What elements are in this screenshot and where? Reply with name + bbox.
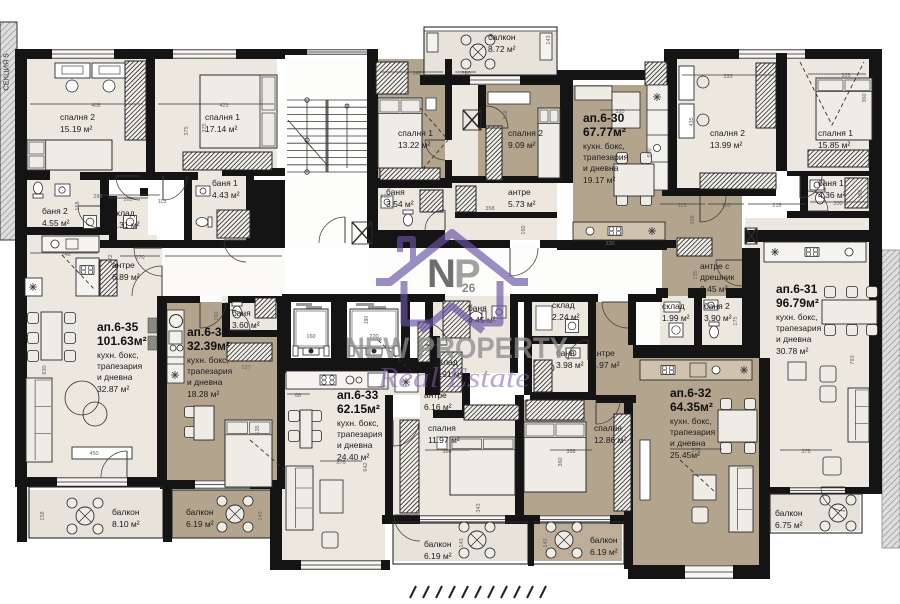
- svg-text:СЕКЦИЯ 5: СЕКЦИЯ 5: [2, 53, 11, 90]
- svg-text:баня: баня: [232, 308, 251, 318]
- svg-text:5.73 м²: 5.73 м²: [508, 199, 536, 209]
- svg-text:375: 375: [184, 126, 190, 135]
- svg-text:6.75 м²: 6.75 м²: [775, 520, 803, 530]
- svg-text:1.31 м²: 1.31 м²: [112, 220, 140, 230]
- svg-text:кухн. бокс,: кухн. бокс,: [97, 350, 139, 360]
- svg-text:8.72 м²: 8.72 м²: [488, 44, 516, 54]
- svg-text:143: 143: [543, 538, 549, 547]
- svg-text:и дневна: и дневна: [337, 440, 373, 450]
- svg-text:и дневна: и дневна: [187, 377, 223, 387]
- svg-text:165: 165: [380, 194, 389, 200]
- svg-text:137: 137: [241, 365, 250, 371]
- svg-text:630: 630: [42, 365, 48, 374]
- svg-text:793: 793: [850, 355, 856, 364]
- svg-text:143: 143: [258, 511, 264, 520]
- svg-text:трапезария: трапезария: [670, 427, 716, 437]
- svg-text:трапезария: трапезария: [776, 323, 822, 333]
- svg-text:и дневна: и дневна: [670, 438, 706, 448]
- svg-text:26: 26: [462, 281, 476, 295]
- svg-text:склад: склад: [662, 301, 685, 311]
- svg-text:32.87 м²: 32.87 м²: [97, 384, 129, 394]
- svg-text:6.16 м²: 6.16 м²: [424, 402, 452, 412]
- svg-text:кухн. бокс,: кухн. бокс,: [670, 416, 712, 426]
- svg-text:101.63м²: 101.63м²: [97, 334, 147, 348]
- svg-text:19.17 м²: 19.17 м²: [583, 175, 615, 185]
- svg-text:спалня: спалня: [428, 423, 456, 433]
- svg-text:ап.6-34: ап.6-34: [187, 325, 229, 339]
- svg-text:трапезария: трапезария: [583, 152, 629, 162]
- svg-text:160: 160: [306, 334, 315, 340]
- svg-text:143: 143: [459, 538, 465, 547]
- svg-text:158: 158: [40, 511, 46, 520]
- svg-text:спалня: спалня: [594, 423, 622, 433]
- svg-text:15.19 м²: 15.19 м²: [60, 124, 92, 134]
- svg-text:баня: баня: [468, 303, 487, 313]
- svg-text:5.97 м²: 5.97 м²: [592, 360, 620, 370]
- svg-text:балкон: балкон: [424, 539, 452, 549]
- svg-text:2.24 м²: 2.24 м²: [552, 312, 580, 322]
- svg-text:спалня 2: спалня 2: [710, 128, 745, 138]
- svg-text:3.54 м²: 3.54 м²: [386, 199, 414, 209]
- svg-text:11.97 м²: 11.97 м²: [428, 435, 460, 445]
- svg-text:баня 2: баня 2: [704, 301, 730, 311]
- svg-text:кухн. бокс,: кухн. бокс,: [337, 418, 379, 428]
- svg-text:330: 330: [605, 241, 614, 247]
- svg-text:343: 343: [476, 503, 482, 512]
- svg-text:спалня 1: спалня 1: [205, 112, 240, 122]
- svg-text:склад: склад: [112, 208, 135, 218]
- svg-text:спалня 1: спалня 1: [818, 128, 853, 138]
- svg-text:358: 358: [485, 206, 494, 212]
- svg-text:8.45 м²: 8.45 м²: [700, 284, 728, 294]
- svg-text:62.15м²: 62.15м²: [337, 402, 380, 416]
- svg-text:3.90 м²: 3.90 м²: [704, 313, 732, 323]
- svg-text:и дневна: и дневна: [97, 372, 133, 382]
- svg-text:4.43 м²: 4.43 м²: [212, 190, 240, 200]
- svg-text:450: 450: [89, 451, 98, 457]
- svg-text:113: 113: [158, 199, 167, 205]
- svg-text:13.99 м²: 13.99 м²: [710, 140, 742, 150]
- svg-text:96.79м²: 96.79м²: [776, 296, 819, 310]
- svg-text:360: 360: [558, 457, 564, 466]
- svg-text:6.19 м²: 6.19 м²: [590, 547, 618, 557]
- svg-text:15.85 м²: 15.85 м²: [818, 140, 850, 150]
- svg-text:NEW PROPERTY: NEW PROPERTY: [345, 332, 568, 365]
- svg-text:190: 190: [364, 316, 370, 325]
- svg-text:ап.6-32: ап.6-32: [670, 386, 712, 400]
- svg-text:антре: антре: [592, 348, 615, 358]
- svg-text:9.09 м²: 9.09 м²: [508, 140, 536, 150]
- svg-text:158: 158: [75, 201, 81, 210]
- svg-text:балкон: балкон: [775, 508, 803, 518]
- svg-text:спалня 2: спалня 2: [508, 128, 543, 138]
- svg-text:4.36 м²: 4.36 м²: [818, 190, 846, 200]
- svg-text:30.78 м²: 30.78 м²: [776, 346, 808, 356]
- svg-text:318: 318: [503, 110, 509, 119]
- svg-text:12.86 м²: 12.86 м²: [594, 435, 626, 445]
- svg-text:6.89 м²: 6.89 м²: [112, 272, 140, 282]
- svg-text:135: 135: [255, 425, 261, 434]
- svg-text:190: 190: [214, 311, 220, 320]
- svg-text:ап.6-31: ап.6-31: [776, 282, 818, 296]
- svg-text:160: 160: [521, 225, 527, 234]
- svg-text:трапезария: трапезария: [337, 429, 383, 439]
- svg-text:дрешник: дрешник: [700, 272, 735, 282]
- svg-text:трапезария: трапезария: [187, 366, 233, 376]
- svg-text:590: 590: [647, 148, 653, 157]
- svg-text:антре: антре: [112, 260, 135, 270]
- svg-text:балкон: балкон: [488, 32, 516, 42]
- svg-text:18.28 м²: 18.28 м²: [187, 389, 219, 399]
- svg-text:143: 143: [546, 35, 552, 44]
- svg-text:спалня 1: спалня 1: [398, 128, 433, 138]
- svg-text:17.14 м²: 17.14 м²: [205, 124, 237, 134]
- svg-text:1.99 м²: 1.99 м²: [662, 313, 690, 323]
- svg-text:360: 360: [862, 93, 868, 102]
- svg-text:435: 435: [689, 117, 695, 126]
- svg-text:антре с: антре с: [700, 261, 730, 271]
- svg-text:склад: склад: [552, 300, 575, 310]
- svg-text:кухн. бокс,: кухн. бокс,: [583, 141, 625, 151]
- svg-text:и дневна: и дневна: [776, 334, 812, 344]
- svg-text:антре: антре: [508, 187, 531, 197]
- svg-text:кухн. бокс,: кухн. бокс,: [776, 312, 818, 322]
- svg-text:3.60 м²: 3.60 м²: [232, 320, 260, 330]
- svg-text:208: 208: [690, 215, 696, 224]
- svg-text:375: 375: [202, 123, 208, 132]
- svg-text:ап.6-33: ап.6-33: [337, 388, 379, 402]
- svg-text:13.22 м²: 13.22 м²: [398, 140, 430, 150]
- svg-text:баня 1: баня 1: [818, 178, 844, 188]
- svg-text:222: 222: [108, 254, 114, 263]
- svg-text:67.77м²: 67.77м²: [583, 125, 626, 139]
- svg-text:баня 2: баня 2: [42, 206, 68, 216]
- svg-text:ап.6-35: ап.6-35: [97, 320, 139, 334]
- svg-text:6.19 м²: 6.19 м²: [424, 551, 452, 561]
- svg-text:баня 1: баня 1: [212, 178, 238, 188]
- svg-text:4.55 м²: 4.55 м²: [42, 218, 70, 228]
- svg-text:8.10 м²: 8.10 м²: [112, 519, 140, 529]
- svg-text:кухн. бокс,: кухн. бокс,: [187, 355, 229, 365]
- svg-text:и дневна: и дневна: [583, 163, 619, 173]
- svg-text:N: N: [427, 252, 456, 296]
- svg-text:спалня 2: спалня 2: [60, 112, 95, 122]
- svg-text:64.35м²: 64.35м²: [670, 400, 713, 414]
- svg-text:135: 135: [693, 270, 699, 279]
- svg-text:Real Estate: Real Estate: [377, 362, 530, 394]
- svg-text:трапезария: трапезария: [97, 361, 143, 371]
- svg-text:6.19 м²: 6.19 м²: [186, 519, 214, 529]
- svg-text:642: 642: [363, 462, 369, 471]
- svg-text:балкон: балкон: [590, 535, 618, 545]
- svg-text:188: 188: [858, 189, 864, 198]
- svg-text:балкон: балкон: [112, 507, 140, 517]
- svg-text:32.39м²: 32.39м²: [187, 339, 230, 353]
- svg-text:балкон: балкон: [186, 507, 214, 517]
- svg-text:175: 175: [733, 316, 739, 325]
